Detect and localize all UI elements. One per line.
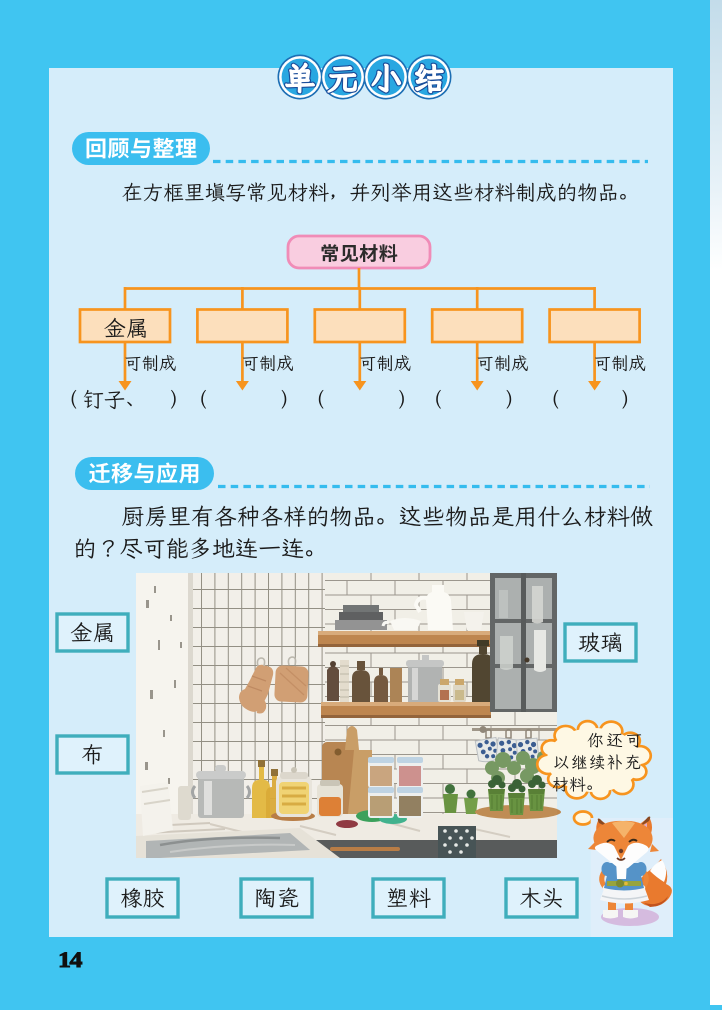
svg-text:14: 14 (58, 948, 82, 973)
